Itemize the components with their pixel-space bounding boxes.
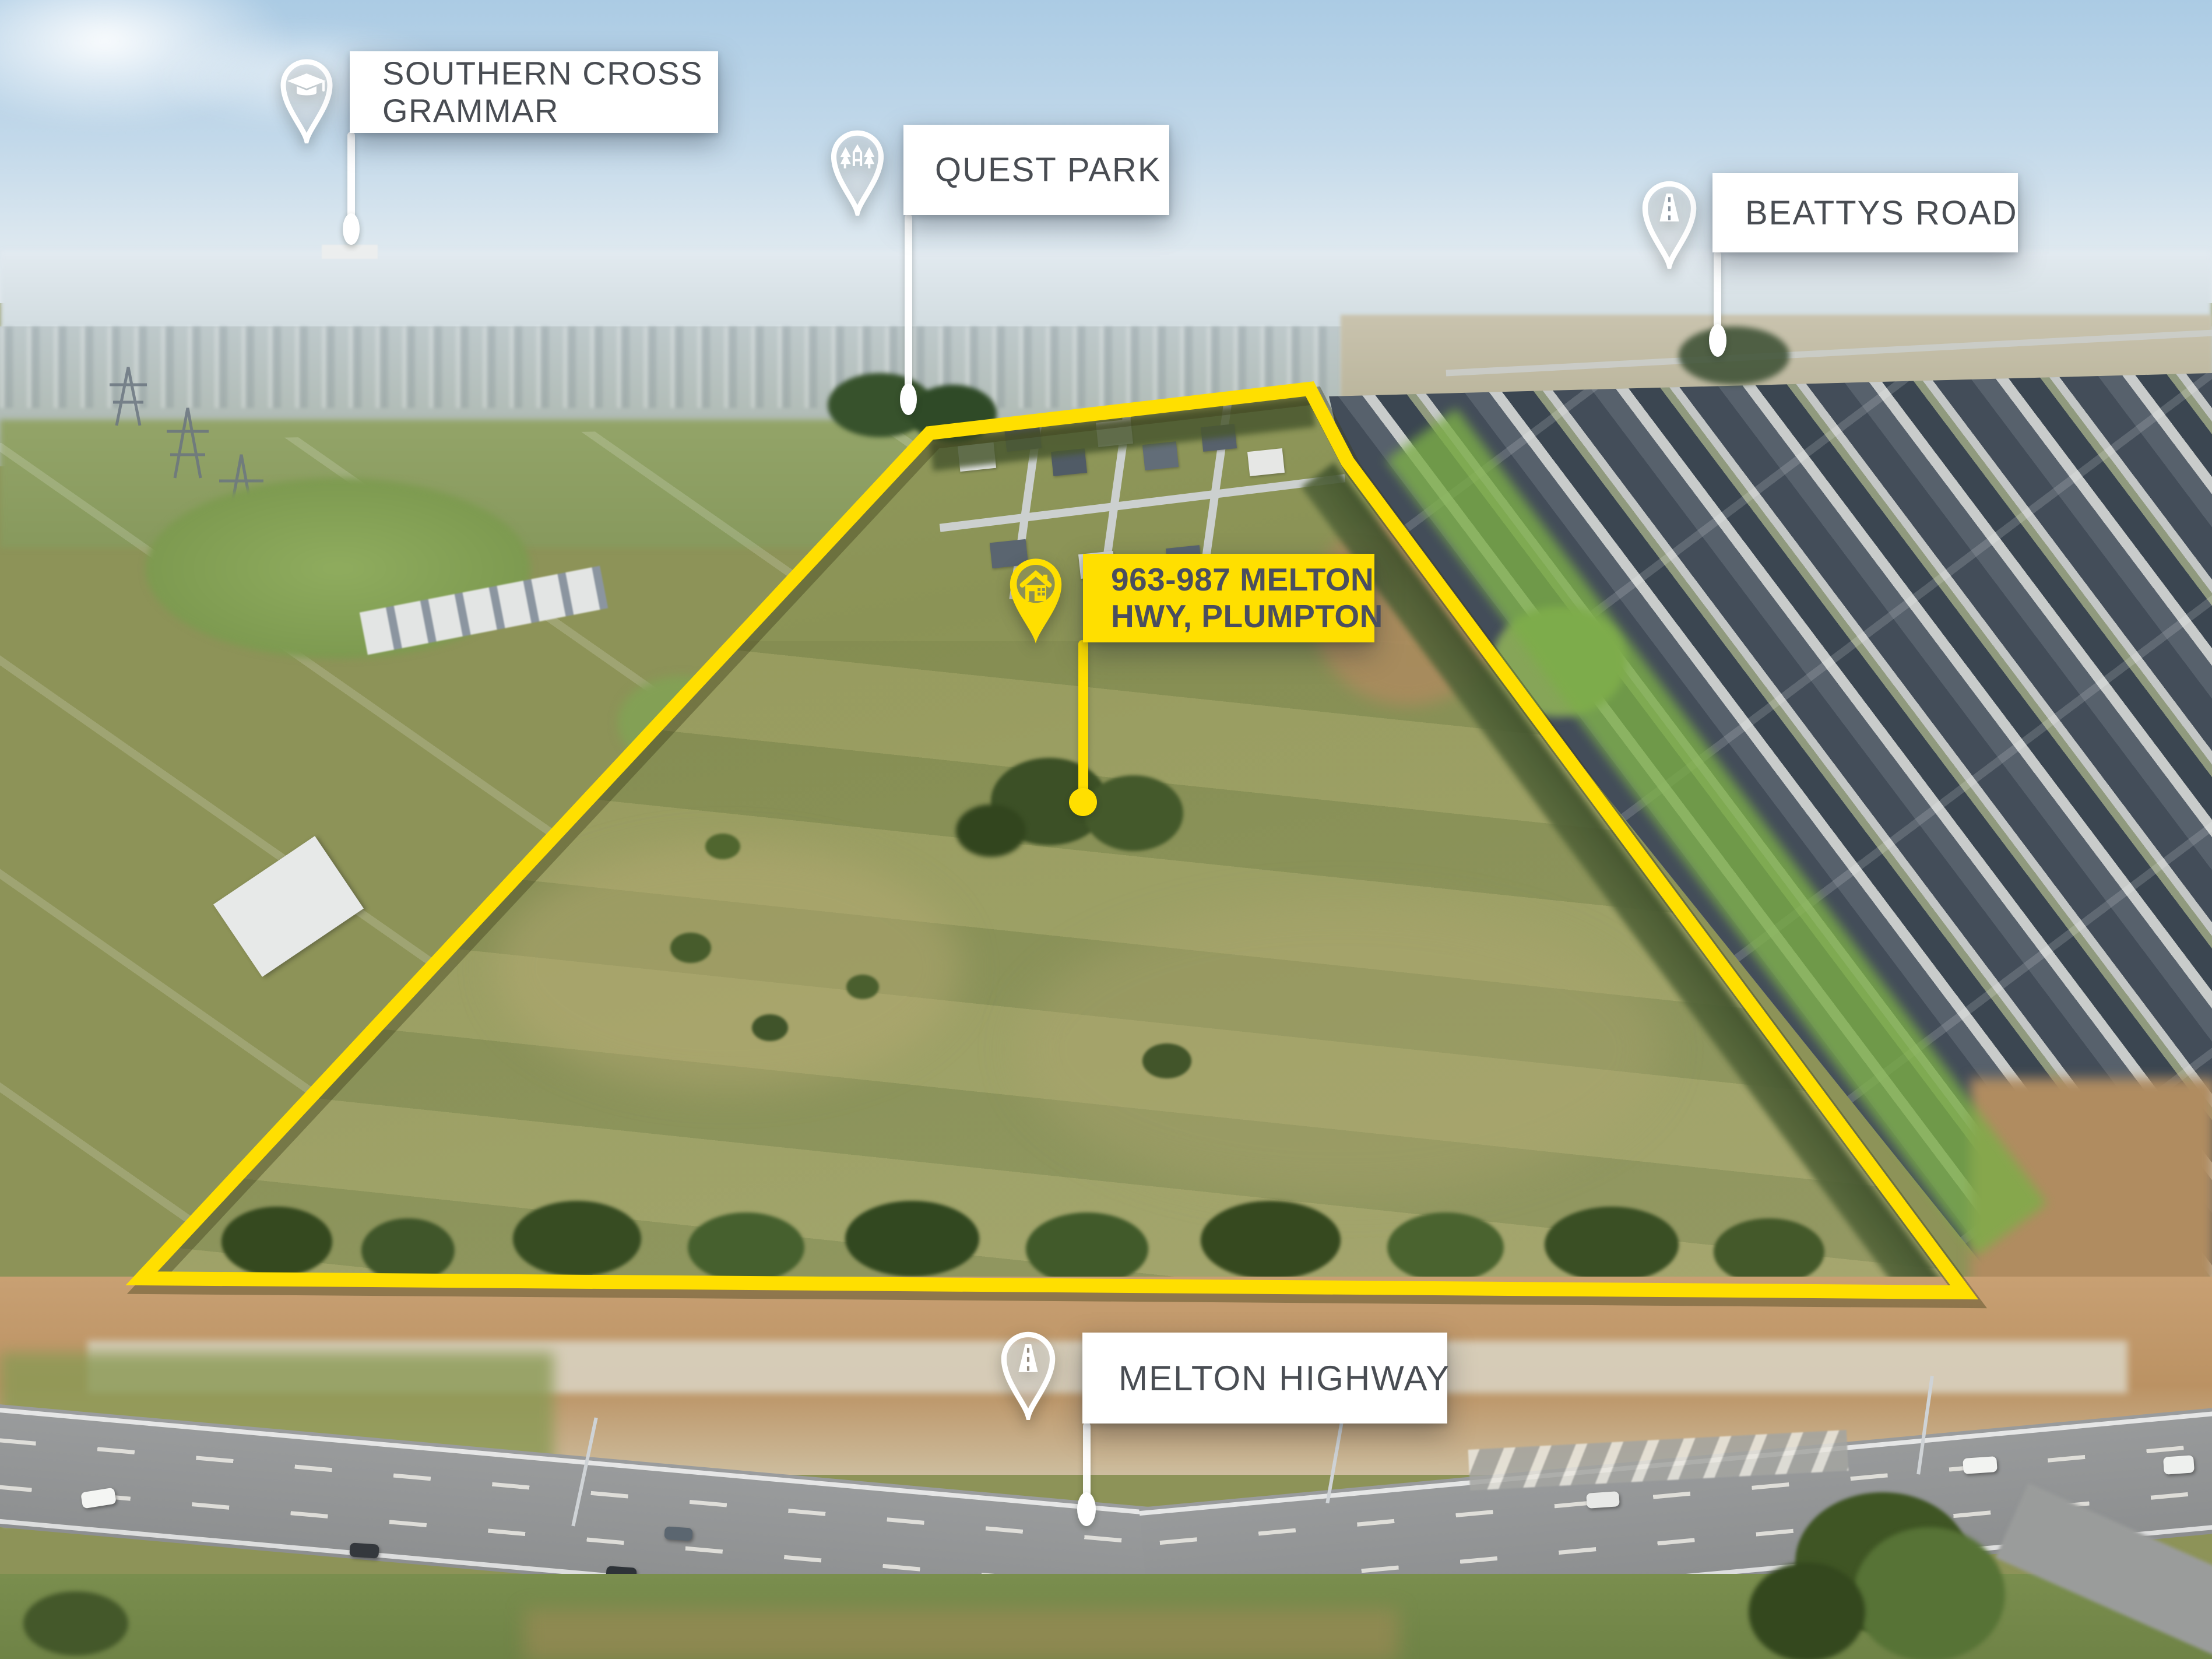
label-text: BEATTYS ROAD: [1745, 194, 2018, 233]
callout-stem: [1714, 251, 1721, 328]
label-beattys-road: BEATTYS ROAD: [1712, 173, 2018, 252]
label-property-address: 963-987 MELTON HWY, PLUMPTON: [1083, 554, 1374, 642]
callout-stem: [1083, 1422, 1091, 1498]
label-text: MELTON HIGHWAY: [1119, 1358, 1447, 1398]
callout-endpoint-dot: [900, 384, 917, 415]
label-text: GRAMMAR: [382, 92, 718, 129]
property-endpoint-dot: [1069, 788, 1097, 816]
label-text: 963-987 MELTON: [1111, 561, 1374, 598]
callout-endpoint-dot: [1077, 1492, 1096, 1526]
callout-endpoint-dot: [343, 213, 360, 245]
label-melton-highway: MELTON HIGHWAY: [1082, 1333, 1447, 1423]
label-southern-cross-grammar: SOUTHERN CROSS GRAMMAR: [350, 51, 718, 133]
callout-endpoint-dot: [1709, 324, 1726, 357]
label-text: SOUTHERN CROSS: [382, 55, 718, 92]
school-map-pin: [277, 56, 336, 143]
property-map-pin: [1005, 554, 1067, 646]
road-map-pin: [1639, 178, 1700, 269]
property-stem: [1078, 640, 1088, 797]
aerial-property-photo: SOUTHERN CROSS GRAMMAR QUEST PARK BEATTY…: [0, 0, 2212, 1659]
road-map-pin: [998, 1328, 1058, 1420]
label-quest-park: QUEST PARK: [903, 125, 1169, 215]
park-map-pin: [828, 127, 887, 216]
label-text: HWY, PLUMPTON: [1111, 598, 1374, 635]
callout-stem: [347, 132, 355, 218]
label-text: QUEST PARK: [935, 150, 1169, 189]
callout-stem: [905, 214, 912, 389]
